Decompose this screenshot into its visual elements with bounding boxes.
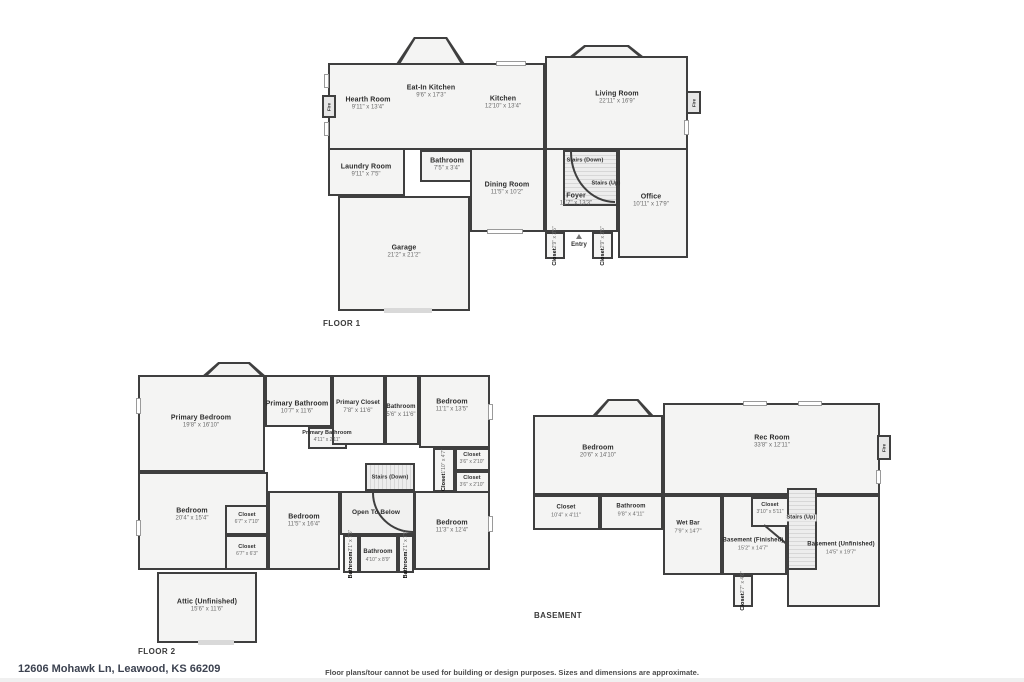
room-label-closet-e2: Closet3'6" x 2'10"	[460, 475, 485, 489]
room-label-office: Office10'11" x 17'9"	[633, 193, 669, 210]
window-marker	[684, 120, 689, 135]
property-address: 12606 Mohawk Ln, Leawood, KS 66209	[18, 663, 220, 675]
window-marker	[324, 74, 329, 88]
room-label-bedroom-se: Bedroom11'3" x 12'4"	[436, 519, 468, 536]
window-marker	[488, 404, 493, 420]
room-label-closet-m1: Closet6'7" x 7'10"	[235, 512, 260, 526]
room-label-closet-m2: Closet6'7" x 6'3"	[236, 544, 258, 558]
room-label-eat-in-kitchen: Eat-In Kitchen9'6" x 17'3"	[407, 84, 455, 101]
window-marker	[798, 401, 822, 406]
fireplace-icon: Fire	[322, 95, 336, 118]
window-marker	[496, 61, 526, 66]
room-label-bathroom-top: Bathroom5'6" x 11'6"	[386, 404, 415, 420]
room-label-closet-e1: Closet3'6" x 2'10"	[460, 452, 485, 466]
room-label-basement-unfinished: Basement (Unfinished)14'5" x 19'7"	[807, 542, 874, 557]
room-label-bedroom-s: Bedroom11'5" x 16'4"	[288, 513, 320, 530]
room-label-closet-stairs: Closet3'10" x 5'11"	[756, 502, 783, 516]
floor1-title: FLOOR 1	[323, 319, 360, 328]
room-label-closet-w: Closet10'4" x 4'11"	[551, 505, 581, 520]
room-label-primary-closet: Primary Closet7'8" x 11'6"	[336, 400, 380, 416]
garage-door-marker	[384, 308, 432, 313]
room-label-stairs-down: Stairs (Down)	[567, 157, 604, 164]
room-label-open-to-below: Open To Below	[352, 509, 400, 517]
room-label-foyer: Foyer11'7" x 13'3"	[560, 192, 592, 209]
room-label-stairs-down: Stairs (Down)	[372, 474, 409, 481]
window-marker	[324, 122, 329, 136]
room-label-bathroom-left: Bathroom2'1" x 7'5"	[340, 530, 362, 579]
window-marker	[136, 520, 141, 536]
room-label-primary-bedroom: Primary Bedroom19'8" x 16'10"	[171, 414, 231, 431]
room-label-hearth: Hearth Room9'11" x 13'4"	[345, 96, 390, 113]
room-label-wet-bar: Wet Bar7'9" x 14'7"	[674, 521, 701, 536]
fireplace-icon: Fire	[877, 435, 891, 460]
room-label-primary-bathroom-small: Primary Bathroom4'11" x 2'11"	[302, 430, 352, 444]
room-label-bedroom: Bedroom20'6" x 14'10"	[580, 444, 616, 461]
room-label-closet-left: Closet2'9" x 3'5"	[544, 226, 566, 265]
room-label-stairs-up: Stairs (Up)	[786, 514, 817, 521]
room-label-garage: Garage21'2" x 21'2"	[388, 244, 421, 261]
room-label-laundry: Laundry Room9'11" x 7'5"	[341, 163, 392, 180]
room-label-kitchen: Kitchen12'10" x 13'4"	[485, 95, 521, 112]
window-marker	[743, 401, 767, 406]
room-label-basement-finished: Basement (Finished)15'2" x 14'7"	[723, 538, 784, 553]
room-label-bedroom-ne: Bedroom11'1" x 13'5"	[436, 398, 468, 415]
room-label-living: Living Room22'11" x 16'9"	[595, 90, 639, 107]
room-label-closet-right: Closet2'9" x 3'5"	[592, 226, 614, 265]
fireplace-icon: Fire	[686, 91, 701, 114]
entry-arrow-icon	[576, 234, 582, 239]
window-marker	[488, 516, 493, 532]
room-label-rec-room: Rec Room33'8" x 12'11"	[754, 434, 790, 451]
window-marker	[136, 398, 141, 414]
basement-title: BASEMENT	[534, 611, 582, 620]
room-label-primary-bathroom: Primary Bathroom10'7" x 11'6"	[266, 400, 329, 417]
room-label-entry: Entry	[571, 242, 587, 250]
room-label-bathroom-center: Bathroom4'10" x 8'9"	[363, 549, 392, 563]
window-marker	[876, 470, 881, 484]
room-label-attic: Attic (Unfinished)15'6" x 11'6"	[177, 598, 237, 615]
basement-stairs	[787, 488, 817, 570]
room-label-closet-side: Closet1'10" x 4'7"	[433, 449, 455, 491]
attic-door-marker	[198, 640, 234, 645]
room-label-bedroom-w: Bedroom20'4" x 15'4"	[176, 507, 209, 524]
patio-door-marker	[487, 229, 523, 234]
room-label-bathroom: Bathroom7'5" x 3'4"	[430, 157, 464, 174]
bottom-edge-strip	[0, 678, 1024, 682]
room-label-bathroom-right: Bathroom2'1" x 7'5"	[395, 530, 417, 579]
room-label-stairs-up: Stairs (Up)	[592, 180, 621, 187]
room-label-bathroom: Bathroom9'8" x 4'11"	[616, 504, 645, 519]
room-label-closet-bottom: Closet2'7" x 4'6"	[732, 571, 754, 610]
floor2-title: FLOOR 2	[138, 647, 175, 656]
room-label-dining: Dining Room11'5" x 10'2"	[485, 181, 530, 198]
disclaimer-text: Floor plans/tour cannot be used for buil…	[325, 668, 699, 677]
